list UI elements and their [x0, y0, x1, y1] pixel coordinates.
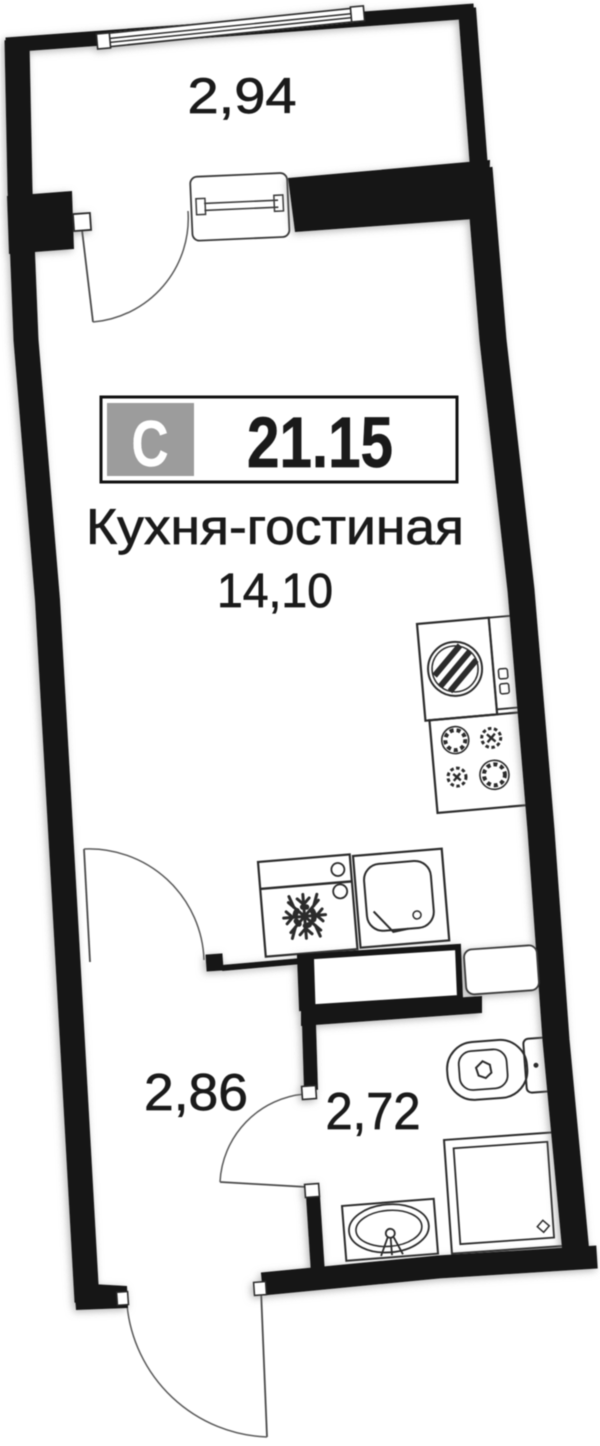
svg-text:21.15: 21.15 [247, 404, 393, 483]
svg-text:14,10: 14,10 [217, 565, 333, 618]
svg-text:2,94: 2,94 [188, 68, 297, 124]
svg-text:Кухня-гостиная: Кухня-гостиная [86, 499, 464, 555]
svg-text:С: С [132, 407, 169, 480]
svg-text:2,72: 2,72 [326, 1083, 421, 1141]
svg-text:2,86: 2,86 [144, 1064, 248, 1122]
